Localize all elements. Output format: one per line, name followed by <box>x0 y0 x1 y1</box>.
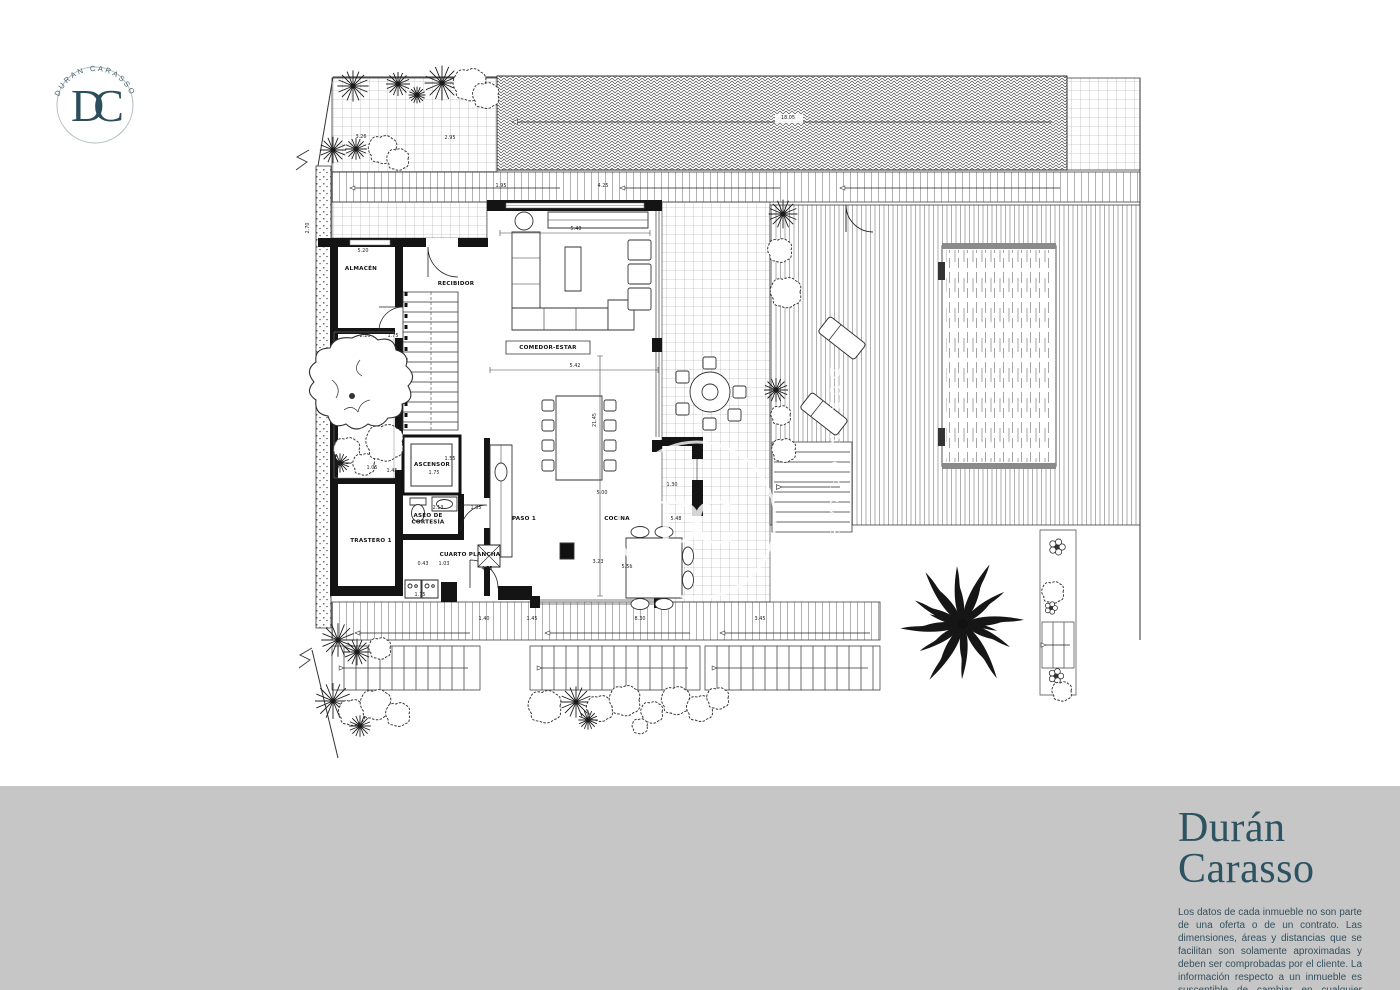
room-label-recibidor: RECIBIDOR <box>438 281 475 287</box>
dimension-label-24: 5.00 <box>597 490 608 496</box>
watermark-monogram: DC <box>656 486 732 557</box>
dimension-label-1: 5.42 <box>570 363 581 369</box>
room-label-paso-1: PASO 1 <box>512 516 536 522</box>
footer-brand-name: Durán Carasso <box>1178 808 1362 890</box>
pool <box>938 243 1056 469</box>
room-label-aseo-cortesia-2: CORTESÍA <box>412 518 445 526</box>
footer-brand-line1: Durán <box>1178 808 1362 849</box>
dimension-label-4: 2.95 <box>445 135 456 141</box>
room-label-cuarto-plancha: CUARTO PLANCHA <box>440 552 501 558</box>
pool-ladder <box>938 428 945 446</box>
footer-disclaimer: Los datos de cada inmueble no son parte … <box>1178 906 1362 990</box>
upper-walkway <box>332 172 1140 202</box>
room-label-aseo-cortesia: ASEO DE <box>413 513 442 519</box>
dimension-label-18: 4.75 <box>482 566 493 572</box>
dimension-label-15: 1.85 <box>471 505 482 511</box>
dimension-label-19: 1.75 <box>415 592 426 598</box>
pool-ladder <box>938 262 945 280</box>
dimension-label-27: 3.23 <box>593 559 604 565</box>
footer-brand-line2: Carasso <box>1178 849 1362 890</box>
dimension-label-6: 2.70 <box>305 223 311 234</box>
room-label-almacen: ALMACÉN <box>345 264 377 272</box>
dimension-label-17: 1.03 <box>439 561 450 567</box>
brochure-page: DURAN CARASSO DC <box>0 0 1400 990</box>
dimension-label-2: 21.45 <box>592 413 598 427</box>
room-label-trastero-1: TRASTERO 1 <box>350 538 392 544</box>
living-room-furniture <box>512 212 651 330</box>
corner-paving <box>1067 78 1140 170</box>
logo-monogram: DC <box>71 80 122 131</box>
entry-paving-2 <box>332 202 487 238</box>
dimension-label-10: 1.05 <box>367 465 378 471</box>
dimension-label-30: 4.25 <box>598 183 609 189</box>
dimension-label-0: 5.40 <box>571 226 582 232</box>
dimension-label-5: 3.26 <box>356 134 367 140</box>
dimension-label-12: 1.55 <box>445 456 456 462</box>
floor-plan: ALMACÉNRECIBIDORCOMEDOR-ESTARCOCINAPASO … <box>275 40 1155 760</box>
room-label-cocina: COCINA <box>604 516 630 522</box>
dimension-label-23: 3.45 <box>755 616 766 622</box>
room-label-comedor-estar: COMEDOR-ESTAR <box>519 345 577 351</box>
dimension-label-13: 1.75 <box>429 470 440 476</box>
dimension-label-22: 8.30 <box>635 616 646 622</box>
planter-strip <box>1040 530 1076 701</box>
lower-walkway <box>332 602 880 640</box>
footer-band: Durán Carasso Los datos de cada inmueble… <box>0 786 1400 990</box>
watermark-name: DURAN CARASSO <box>826 368 842 572</box>
brand-logo: DURAN CARASSO DC <box>28 35 168 175</box>
dimension-label-3: 18.05 <box>781 115 795 121</box>
dimension-label-21: 1.45 <box>527 616 538 622</box>
dimension-label-7: 5.20 <box>358 248 369 254</box>
dimension-label-28: 5.58 <box>622 564 633 570</box>
dimension-label-16: 0.43 <box>418 561 429 567</box>
garden-stairs <box>332 646 880 690</box>
dimension-label-20: 1.40 <box>479 616 490 622</box>
palm-tree <box>900 563 1024 682</box>
interior-staircase <box>403 292 458 430</box>
room-label-ascensor: ASCENSOR <box>414 462 450 468</box>
dimension-label-14: 2.13 <box>433 505 444 511</box>
dimension-label-11: 1.45 <box>387 468 398 474</box>
dimension-label-9: 1.75 <box>388 333 399 339</box>
dimension-label-29: 1.95 <box>496 183 507 189</box>
dimension-label-8: 2.20 <box>360 333 371 339</box>
